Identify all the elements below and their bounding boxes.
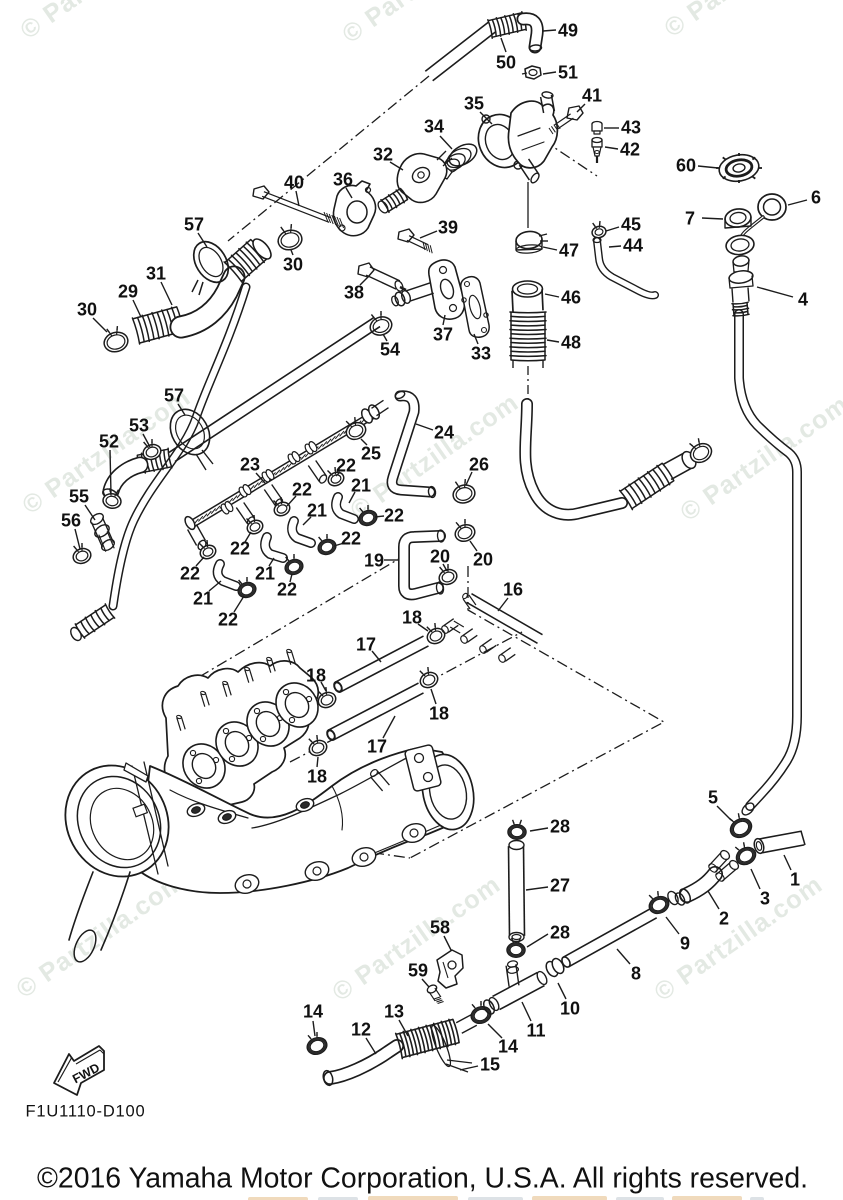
svg-text:2: 2 [719,909,729,929]
svg-text:32: 32 [373,145,393,165]
svg-text:23: 23 [240,455,260,475]
svg-text:35: 35 [464,94,484,114]
svg-text:7: 7 [685,209,695,229]
svg-text:© Partzilla.com: © Partzilla.com [11,867,189,1004]
svg-text:22: 22 [341,529,361,549]
svg-text:28: 28 [550,923,570,943]
svg-text:43: 43 [621,118,641,138]
svg-text:© Partzilla.com: © Partzilla.com [649,870,827,1007]
svg-text:1: 1 [790,870,800,890]
svg-text:19: 19 [364,551,384,571]
svg-text:17: 17 [367,737,387,757]
svg-text:25: 25 [361,444,381,464]
svg-text:10: 10 [560,999,580,1019]
svg-text:54: 54 [380,340,400,360]
svg-text:34: 34 [424,117,444,137]
svg-text:22: 22 [292,480,312,500]
svg-text:49: 49 [558,21,578,41]
svg-text:21: 21 [351,476,371,496]
svg-text:© Partzilla.com: © Partzilla.com [15,0,193,45]
svg-text:40: 40 [284,173,304,193]
svg-text:24: 24 [434,423,454,443]
svg-text:4: 4 [798,290,808,310]
svg-text:57: 57 [184,215,204,235]
svg-text:18: 18 [306,666,326,686]
svg-text:50: 50 [496,53,516,73]
svg-text:27: 27 [550,876,570,896]
svg-text:31: 31 [146,264,166,284]
svg-text:52: 52 [99,432,119,452]
svg-text:42: 42 [620,140,640,160]
svg-text:21: 21 [255,564,275,584]
svg-text:39: 39 [438,218,458,238]
svg-text:28: 28 [550,817,570,837]
svg-text:15: 15 [480,1055,500,1075]
svg-text:21: 21 [307,501,327,521]
svg-text:26: 26 [469,455,489,475]
svg-text:21: 21 [193,589,213,609]
svg-text:48: 48 [561,333,581,353]
svg-text:8: 8 [631,964,641,984]
svg-text:22: 22 [336,456,356,476]
svg-text:5: 5 [708,788,718,808]
svg-text:59: 59 [408,961,428,981]
svg-text:F1U1110-D100: F1U1110-D100 [26,1103,146,1121]
svg-text:22: 22 [230,539,250,559]
svg-text:51: 51 [558,63,578,83]
svg-text:56: 56 [61,511,81,531]
svg-text:16: 16 [503,580,523,600]
svg-text:60: 60 [676,156,696,176]
svg-text:47: 47 [559,241,579,261]
svg-text:17: 17 [356,635,376,655]
svg-text:22: 22 [384,506,404,526]
svg-text:55: 55 [69,487,89,507]
svg-text:36: 36 [333,170,353,190]
svg-text:30: 30 [283,255,303,275]
svg-text:46: 46 [561,288,581,308]
svg-text:58: 58 [430,918,450,938]
svg-text:22: 22 [218,610,238,630]
svg-text:© Partzilla.com: © Partzilla.com [659,0,837,43]
svg-text:18: 18 [307,767,327,787]
svg-text:9: 9 [680,934,690,954]
svg-text:33: 33 [471,344,491,364]
svg-text:18: 18 [429,704,449,724]
svg-text:41: 41 [582,86,602,106]
svg-text:57: 57 [164,386,184,406]
svg-text:20: 20 [473,550,493,570]
svg-text:12: 12 [351,1020,371,1040]
svg-text:14: 14 [498,1037,518,1057]
svg-text:22: 22 [180,564,200,584]
svg-text:14: 14 [303,1002,323,1022]
svg-text:18: 18 [402,608,422,628]
svg-text:44: 44 [623,236,643,256]
svg-text:3: 3 [760,889,770,909]
svg-text:29: 29 [118,282,138,302]
svg-text:© Partzilla.com: © Partzilla.com [327,870,505,1007]
svg-text:38: 38 [344,283,364,303]
svg-text:30: 30 [77,300,97,320]
svg-text:©2016 Yamaha Motor Corporation: ©2016 Yamaha Motor Corporation, U.S.A. A… [37,1163,808,1195]
svg-text:11: 11 [526,1021,545,1041]
svg-text:45: 45 [621,215,641,235]
svg-text:6: 6 [811,188,821,208]
svg-text:20: 20 [430,547,450,567]
svg-text:13: 13 [384,1002,404,1022]
svg-text:22: 22 [277,580,297,600]
svg-text:37: 37 [433,325,453,345]
svg-text:53: 53 [129,416,149,436]
